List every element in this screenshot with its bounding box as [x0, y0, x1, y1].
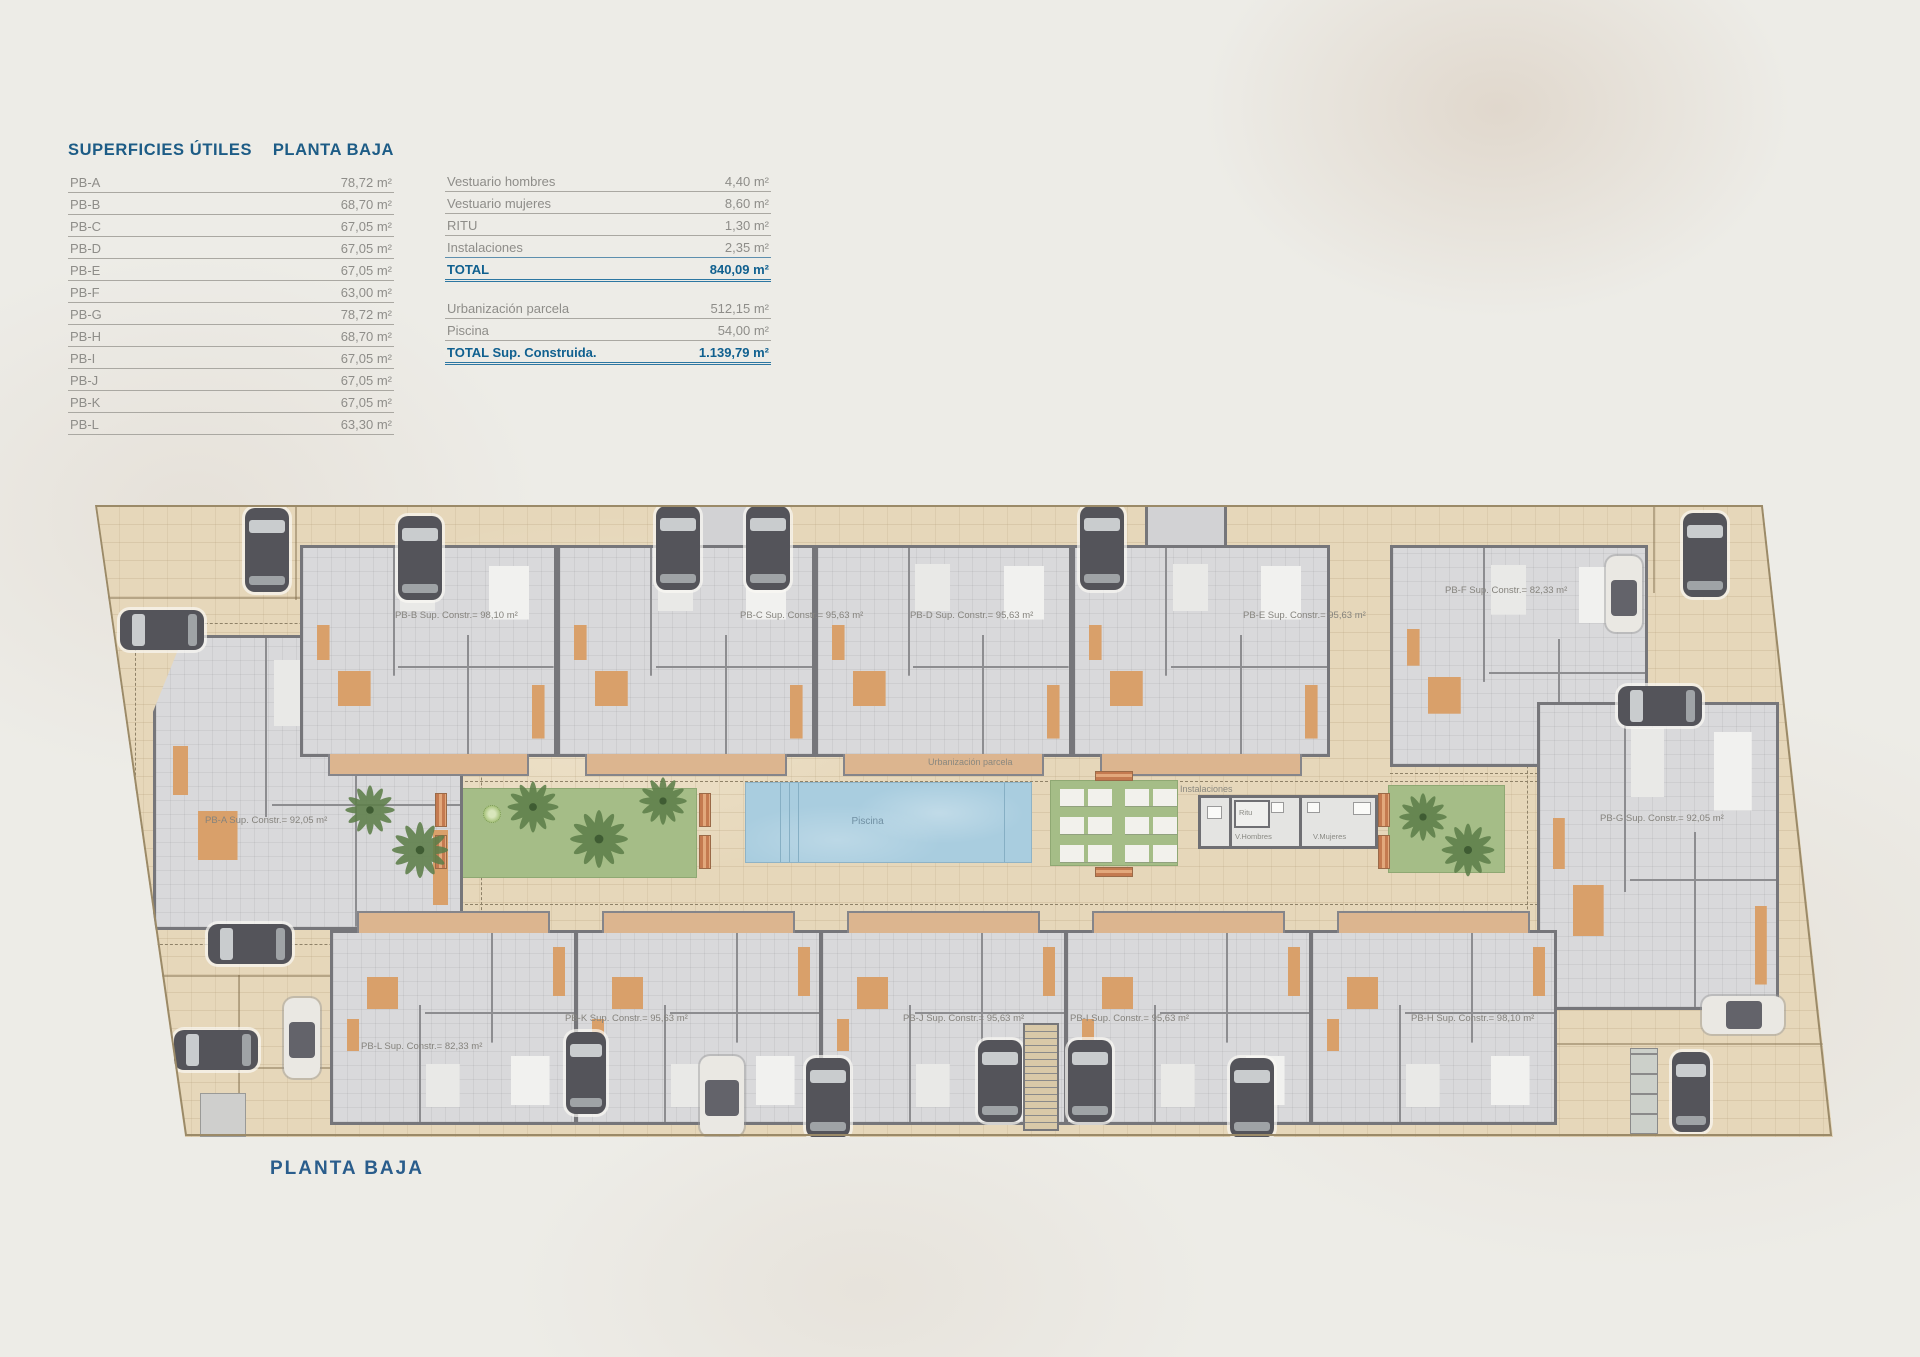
row-label: PB-E [70, 263, 100, 278]
wall [1299, 798, 1302, 846]
pool-label: Piscina [851, 816, 883, 827]
row-value: 2,35 m² [725, 240, 769, 255]
row-label: PB-F [70, 285, 100, 300]
table-row: PB-K67,05 m² [68, 391, 394, 413]
sunbed-icon [1060, 789, 1112, 806]
row-label: PB-H [70, 329, 101, 344]
palm-tree-icon [1437, 819, 1499, 881]
paving-line [157, 975, 332, 977]
planter [1378, 793, 1390, 827]
table-row: Vestuario hombres4,40 m² [445, 170, 771, 192]
row-label: Vestuario hombres [447, 174, 555, 189]
car-icon [1618, 686, 1702, 726]
unit-label-pb-b: PB-B Sup. Constr.= 98,10 m² [395, 610, 518, 621]
table-row: PB-L63,30 m² [68, 413, 394, 435]
row-label: PB-B [70, 197, 100, 212]
planter [1095, 771, 1133, 781]
row-value: 67,05 m² [341, 395, 392, 410]
row-value: 63,30 m² [341, 417, 392, 432]
stairs [1023, 1023, 1059, 1131]
paving-line [95, 597, 300, 599]
row-label: PB-J [70, 373, 98, 388]
car-icon [806, 1058, 850, 1138]
unit-label-pb-k: PB-K Sup. Constr.= 95,63 m² [565, 1013, 688, 1024]
unit-label-pb-d: PB-D Sup. Constr.= 95,63 m² [910, 610, 1033, 621]
fixture [1307, 802, 1320, 813]
palm-tree-icon [387, 817, 453, 883]
paving-line [1550, 1043, 1830, 1045]
spacer [445, 282, 771, 297]
row-label: PB-I [70, 351, 95, 366]
table-title: SUPERFICIES ÚTILES [68, 141, 252, 160]
row-value: 67,05 m² [341, 373, 392, 388]
bush-icon [483, 805, 501, 823]
table-row: RITU1,30 m² [445, 214, 771, 236]
planter [699, 835, 711, 869]
unit-label-pb-a: PB-A Sup. Constr.= 92,05 m² [205, 815, 327, 826]
table-row: PB-A78,72 m² [68, 171, 394, 193]
row-value: 67,05 m² [341, 351, 392, 366]
table-row: Instalaciones2,35 m² [445, 236, 771, 258]
car-icon [174, 1030, 258, 1070]
unit-pb-d [815, 545, 1072, 757]
row-label: RITU [447, 218, 477, 233]
fixture [1353, 802, 1371, 815]
car-icon [1068, 1040, 1112, 1122]
unit-pb-l [330, 930, 577, 1125]
sunbed-icon [1060, 845, 1112, 862]
row-label: Urbanización parcela [447, 301, 569, 316]
row-value: 78,72 m² [341, 307, 392, 322]
car-icon [1672, 1052, 1710, 1132]
row-value: 4,40 m² [725, 174, 769, 189]
car-icon [700, 1056, 744, 1136]
car-icon [1702, 996, 1784, 1034]
car-icon [978, 1040, 1022, 1122]
row-value: 68,70 m² [341, 197, 392, 212]
table-row: PB-C67,05 m² [68, 215, 394, 237]
planter [699, 793, 711, 827]
table-row: PB-J67,05 m² [68, 369, 394, 391]
useful-surfaces-table: SUPERFICIES ÚTILES PLANTA BAJA PB-A78,72… [68, 141, 394, 435]
vestuario-mujeres-label: V.Mujeres [1313, 832, 1346, 841]
wall [1229, 798, 1232, 846]
car-icon [208, 924, 292, 964]
row-label: Instalaciones [447, 240, 523, 255]
paving-line [295, 505, 297, 600]
row-value: 840,09 m² [710, 262, 769, 277]
paved-pad [200, 1093, 246, 1137]
unit-label-pb-j: PB-J Sup. Constr.= 95,63 m² [903, 1013, 1024, 1024]
sunbed-icon [1060, 817, 1112, 834]
row-value: 63,00 m² [341, 285, 392, 300]
table-row: Piscina54,00 m² [445, 319, 771, 341]
table-row: PB-D67,05 m² [68, 237, 394, 259]
table-row: PB-I67,05 m² [68, 347, 394, 369]
car-icon [1606, 556, 1642, 632]
urbanizacion-label: Urbanización parcela [928, 757, 1013, 767]
row-label: PB-G [70, 307, 102, 322]
storage-units [1630, 1048, 1658, 1134]
boundary-dashed-line [330, 904, 1558, 905]
instalaciones-label: Instalaciones [1180, 784, 1233, 794]
sunbed-icon [1125, 817, 1177, 834]
planter [1095, 867, 1133, 877]
unit-label-pb-e: PB-E Sup. Constr.= 95,63 m² [1243, 610, 1366, 621]
palm-tree-icon [503, 777, 563, 837]
row-value: 8,60 m² [725, 196, 769, 211]
unit-pb-k [575, 930, 822, 1125]
car-icon [1683, 513, 1727, 597]
car-icon [120, 610, 204, 650]
row-label: TOTAL Sup. Construida. [447, 345, 597, 360]
total-row: TOTAL Sup. Construida.1.139,79 m² [445, 341, 771, 365]
row-label: PB-A [70, 175, 100, 190]
unit-label-pb-g: PB-G Sup. Constr.= 92,05 m² [1600, 813, 1724, 824]
row-value: 512,15 m² [710, 301, 769, 316]
table-row: Urbanización parcela512,15 m² [445, 297, 771, 319]
ritu-label: Ritu [1239, 808, 1252, 817]
total-row: TOTAL840,09 m² [445, 258, 771, 282]
car-icon [1230, 1058, 1274, 1138]
car-icon [566, 1032, 606, 1114]
fixture [1207, 806, 1222, 819]
row-label: Piscina [447, 323, 489, 338]
table-row: PB-H68,70 m² [68, 325, 394, 347]
floor-plan: PB-A Sup. Constr.= 92,05 m² PB-B Sup. Co… [95, 505, 1833, 1137]
fixture [1271, 802, 1284, 813]
row-value: 78,72 m² [341, 175, 392, 190]
table-row: PB-F63,00 m² [68, 281, 394, 303]
row-value: 68,70 m² [341, 329, 392, 344]
row-value: 1.139,79 m² [699, 345, 769, 360]
paving-line [1653, 505, 1655, 593]
row-label: PB-D [70, 241, 101, 256]
sunbed-icon [1125, 789, 1177, 806]
car-icon [1080, 506, 1124, 590]
page-title: PLANTA BAJA [270, 1158, 424, 1180]
car-icon [398, 516, 442, 600]
palm-tree-icon [635, 773, 691, 829]
car-icon [746, 506, 790, 590]
row-value: 1,30 m² [725, 218, 769, 233]
car-icon [656, 506, 700, 590]
planter [1378, 835, 1390, 869]
table-row: PB-E67,05 m² [68, 259, 394, 281]
table-row: PB-B68,70 m² [68, 193, 394, 215]
table-row: PB-G78,72 m² [68, 303, 394, 325]
sunbed-icon [1125, 845, 1177, 862]
unit-label-pb-i: PB-I Sup. Constr.= 95,63 m² [1070, 1013, 1189, 1024]
totals-table: Vestuario hombres4,40 m² Vestuario mujer… [445, 170, 771, 365]
row-label: PB-L [70, 417, 99, 432]
unit-pb-g [1537, 702, 1779, 1010]
unit-label-pb-l: PB-L Sup. Constr.= 82,33 m² [361, 1041, 482, 1052]
sunbed-area [1050, 780, 1178, 866]
palm-tree-icon [565, 805, 633, 873]
row-label: TOTAL [447, 262, 489, 277]
vestuario-hombres-label: V.Hombres [1235, 832, 1272, 841]
row-value: 54,00 m² [718, 323, 769, 338]
table-subtitle: PLANTA BAJA [273, 141, 394, 160]
row-label: PB-C [70, 219, 101, 234]
unit-label-pb-c: PB-C Sup. Constr.= 95,63 m² [740, 610, 863, 621]
unit-label-pb-f: PB-F Sup. Constr.= 82,33 m² [1445, 585, 1567, 596]
unit-label-pb-h: PB-H Sup. Constr.= 98,10 m² [1411, 1013, 1534, 1024]
sunbeds [1060, 789, 1177, 862]
unit-pb-h [1310, 930, 1557, 1125]
car-icon [284, 998, 320, 1078]
table-row: Vestuario mujeres8,60 m² [445, 192, 771, 214]
row-label: Vestuario mujeres [447, 196, 551, 211]
row-value: 67,05 m² [341, 263, 392, 278]
row-label: PB-K [70, 395, 100, 410]
row-value: 67,05 m² [341, 219, 392, 234]
table-header: SUPERFICIES ÚTILES PLANTA BAJA [68, 141, 394, 160]
facilities-block: Ritu V.Hombres V.Mujeres [1198, 795, 1378, 849]
row-value: 67,05 m² [341, 241, 392, 256]
car-icon [245, 508, 289, 592]
swimming-pool: Piscina [745, 782, 1032, 863]
